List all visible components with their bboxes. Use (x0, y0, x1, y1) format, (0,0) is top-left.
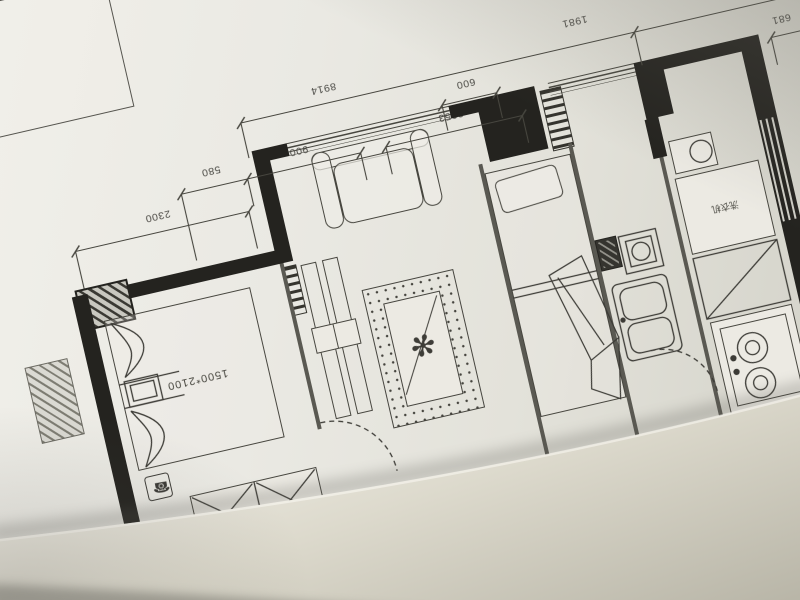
bed2-blanket (507, 252, 632, 417)
wardrobe-x-panels (191, 467, 325, 546)
door-swing-arcs (320, 334, 718, 485)
floor-plan-drawing: 插座 ⌁ 配电箱 ▣ 单联开关 -⊙- 双联开关 -⊙- 五孔插座 -⊙- 网络… (0, 0, 800, 600)
photo-of-floor-plan: 插座 ⌁ 配电箱 ▣ 单联开关 -⊙- 双联开关 -⊙- 五孔插座 -⊙- 网络… (0, 0, 800, 600)
dimension-lines (50, 0, 800, 290)
kitchen-details (667, 128, 800, 406)
bed1-drapes (105, 311, 199, 469)
plan-linework (0, 0, 800, 600)
